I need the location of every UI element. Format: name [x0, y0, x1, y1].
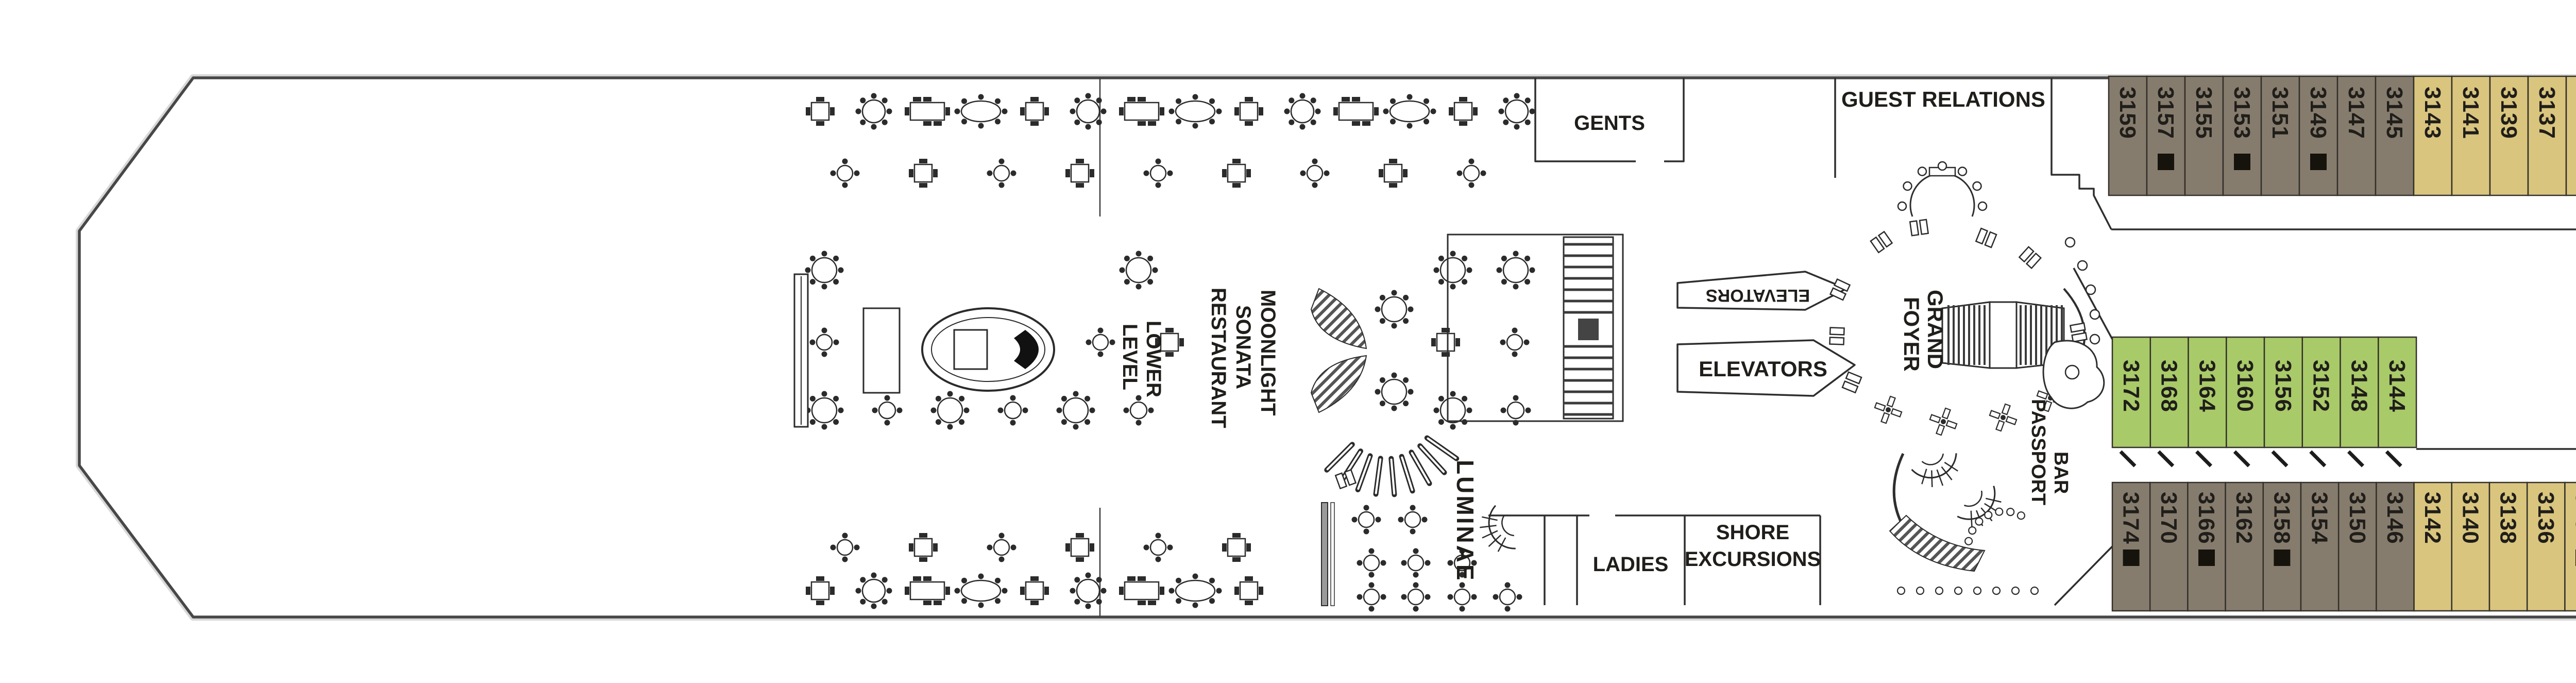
- sofa-bed-marker: [2234, 154, 2250, 170]
- ladies-label: LADIES: [1593, 553, 1669, 576]
- cabin-3141: 3141: [2452, 76, 2490, 195]
- cabin-number: 3147: [2344, 87, 2369, 139]
- bar-stool: [1969, 527, 1976, 534]
- cabin-number: 3170: [2156, 492, 2181, 544]
- cabin-3138: 3138: [2489, 482, 2527, 611]
- cabin-3174: 3174: [2112, 482, 2150, 611]
- cabin-number: 3149: [2306, 87, 2331, 139]
- bar-stool: [2018, 512, 2025, 519]
- grand-foyer-label-word1: GRAND: [1923, 290, 1947, 369]
- cabin-number: 3164: [2194, 360, 2219, 412]
- cabin-3166: 3166: [2188, 482, 2225, 611]
- gents-label: GENTS: [1574, 112, 1645, 135]
- midship-elevators-label-top: ELEVATORS: [1706, 286, 1810, 305]
- cabin-row-middle: 31723168316431603156315231483144: [2112, 337, 2416, 466]
- restaurant-label-word1: MOONLIGHT: [1257, 290, 1279, 415]
- bar-stool: [1936, 587, 1943, 594]
- cabin-number: 3159: [2115, 87, 2140, 139]
- sofa-bed-marker: [2123, 549, 2140, 566]
- dining-table-oval: [1169, 574, 1222, 608]
- cabin-3157: 3157: [2147, 76, 2185, 195]
- bar-stool: [1917, 587, 1924, 594]
- bar-stool: [1993, 587, 2000, 594]
- shore-excursions-label-line1: SHORE: [1716, 521, 1789, 544]
- bar-stool: [2007, 508, 2014, 515]
- cabin-3168: 3168: [2150, 337, 2189, 466]
- passport-bar-label-word1: PASSPORT: [2027, 399, 2049, 505]
- dining-table-round: [1284, 93, 1321, 130]
- cabin-number: 3152: [2309, 360, 2334, 412]
- banquette: [1321, 503, 1328, 606]
- cabin-3172: 3172: [2112, 337, 2150, 466]
- foyer-chair: [2086, 285, 2095, 294]
- cabin-number: 3145: [2382, 87, 2407, 139]
- cabin-number: 3174: [2119, 492, 2144, 544]
- cabin-3146: 3146: [2376, 482, 2414, 611]
- cabin-number: 3142: [2420, 492, 2445, 544]
- cabin-3153: 3153: [2223, 76, 2261, 195]
- cabin-number: 3138: [2496, 492, 2521, 544]
- cabin-number: 3139: [2496, 87, 2521, 139]
- foyer-chair: [2078, 261, 2087, 270]
- cabin-3144: 3144: [2378, 337, 2416, 466]
- grand-foyer-label-word2: FOYER: [1900, 297, 1924, 372]
- cabin-number: 3150: [2345, 492, 2370, 544]
- cabin-3155: 3155: [2185, 76, 2223, 195]
- cabin-number: 3157: [2153, 87, 2178, 139]
- cabin-3147: 3147: [2337, 76, 2376, 195]
- dining-table-round: [1070, 93, 1107, 130]
- cabin-3136: 3136: [2527, 482, 2565, 611]
- cabin-3149: 3149: [2299, 76, 2337, 195]
- cabin-3134: 3134: [2565, 482, 2576, 612]
- foyer-chair: [2065, 238, 2075, 247]
- cabin-3170: 3170: [2150, 482, 2188, 611]
- cabin-3148: 3148: [2341, 337, 2379, 466]
- bar-stool: [2031, 587, 2038, 594]
- bar-stool: [2012, 587, 2019, 594]
- restaurant-label-word3: RESTAURANT: [1207, 288, 1230, 428]
- cabin-3164: 3164: [2189, 337, 2227, 466]
- lower-level-label-word1: LOWER: [1142, 321, 1165, 397]
- cabin-number: 3134: [2571, 492, 2576, 544]
- dining-table-oval: [955, 94, 1008, 129]
- dining-table-oval: [1169, 94, 1222, 129]
- bar-stool: [1897, 587, 1905, 594]
- sofa-bed-marker: [2310, 154, 2327, 170]
- deck-plan-page: 3159315731553153315131493147314531433141…: [0, 0, 2576, 683]
- cabin-number: 3146: [2382, 492, 2408, 544]
- dining-table-oval: [955, 574, 1008, 608]
- sofa-bed-marker: [2274, 549, 2290, 566]
- cabin-3151: 3151: [2261, 76, 2299, 195]
- cabin-number: 3154: [2307, 492, 2332, 544]
- sofa-bed-marker: [2158, 154, 2174, 170]
- shore-excursions-label-line2: EXCURSIONS: [1685, 548, 1821, 571]
- passport-bar-label-word2: BAR: [2050, 452, 2072, 494]
- bar-stool: [1985, 511, 1992, 519]
- guest-relations-label: GUEST RELATIONS: [1841, 87, 2045, 111]
- cabin-number: 3158: [2269, 492, 2294, 544]
- bar-stool: [1965, 538, 1972, 545]
- cabin-3142: 3142: [2414, 482, 2452, 611]
- cabin-number: 3151: [2267, 87, 2293, 139]
- cabin-number: 3168: [2157, 360, 2182, 412]
- cabin-3139: 3139: [2490, 76, 2528, 195]
- cabin-number: 3141: [2458, 87, 2483, 139]
- cabin-number: 3140: [2458, 492, 2483, 544]
- cabin-number: 3172: [2119, 360, 2144, 412]
- cabin-3150: 3150: [2338, 482, 2376, 611]
- cabin-3137: 3137: [2528, 76, 2566, 195]
- cabin-number: 3156: [2270, 360, 2296, 412]
- service-platform: [863, 308, 900, 393]
- cabin-3143: 3143: [2414, 76, 2452, 195]
- foyer-chair: [2090, 310, 2099, 319]
- cabin-number: 3136: [2533, 492, 2558, 544]
- cabin-number: 3155: [2191, 87, 2216, 139]
- cabin-3135: 3135: [2566, 72, 2576, 195]
- cabin-number: 3166: [2194, 492, 2219, 544]
- midship-elevators-label-bottom: ELEVATORS: [1699, 357, 1827, 381]
- cabin-number: 3143: [2420, 87, 2445, 139]
- cabin-number: 3162: [2231, 492, 2257, 544]
- restaurant-label-word2: SONATA: [1232, 305, 1255, 389]
- cabin-3152: 3152: [2302, 337, 2341, 466]
- luminae-label: LUMINAE: [1452, 460, 1479, 582]
- cabin-number: 3137: [2534, 87, 2560, 139]
- cabin-3159: 3159: [2109, 76, 2147, 195]
- cabin-row-top: 3159315731553153315131493147314531433141…: [2109, 72, 2576, 195]
- cabin-3158: 3158: [2263, 482, 2301, 611]
- dining-table-round: [1070, 573, 1107, 609]
- cabin-3145: 3145: [2376, 76, 2414, 195]
- sofa-bed-marker: [2198, 549, 2215, 566]
- bar-stool: [1955, 587, 1962, 594]
- cabin-3162: 3162: [2226, 482, 2263, 611]
- cabin-number: 3148: [2346, 360, 2371, 412]
- lower-level-label-word2: LEVEL: [1118, 324, 1141, 390]
- dining-table-round: [856, 93, 892, 130]
- bar-stool: [1974, 587, 1981, 594]
- bar-stool: [1975, 518, 1982, 525]
- cabin-number: 3160: [2232, 360, 2258, 412]
- dining-table-oval: [1383, 94, 1436, 129]
- cabin-3140: 3140: [2452, 482, 2489, 611]
- cabin-row-bottom: 3174317031663162315831543150314631423140…: [2112, 482, 2576, 612]
- cabin-number: 3135: [2572, 87, 2576, 139]
- deck-plan-drawing: 3159315731553153315131493147314531433141…: [0, 0, 2576, 683]
- dining-table-round: [1499, 93, 1535, 130]
- cabin-number: 3153: [2229, 87, 2255, 139]
- dining-table-round: [856, 573, 892, 609]
- cabin-3160: 3160: [2226, 337, 2264, 466]
- bar-stool: [1995, 508, 2003, 515]
- cabin-3156: 3156: [2264, 337, 2302, 466]
- foyer-chair: [2090, 335, 2099, 344]
- cabin-3154: 3154: [2301, 482, 2338, 611]
- cabin-number: 3144: [2384, 360, 2410, 412]
